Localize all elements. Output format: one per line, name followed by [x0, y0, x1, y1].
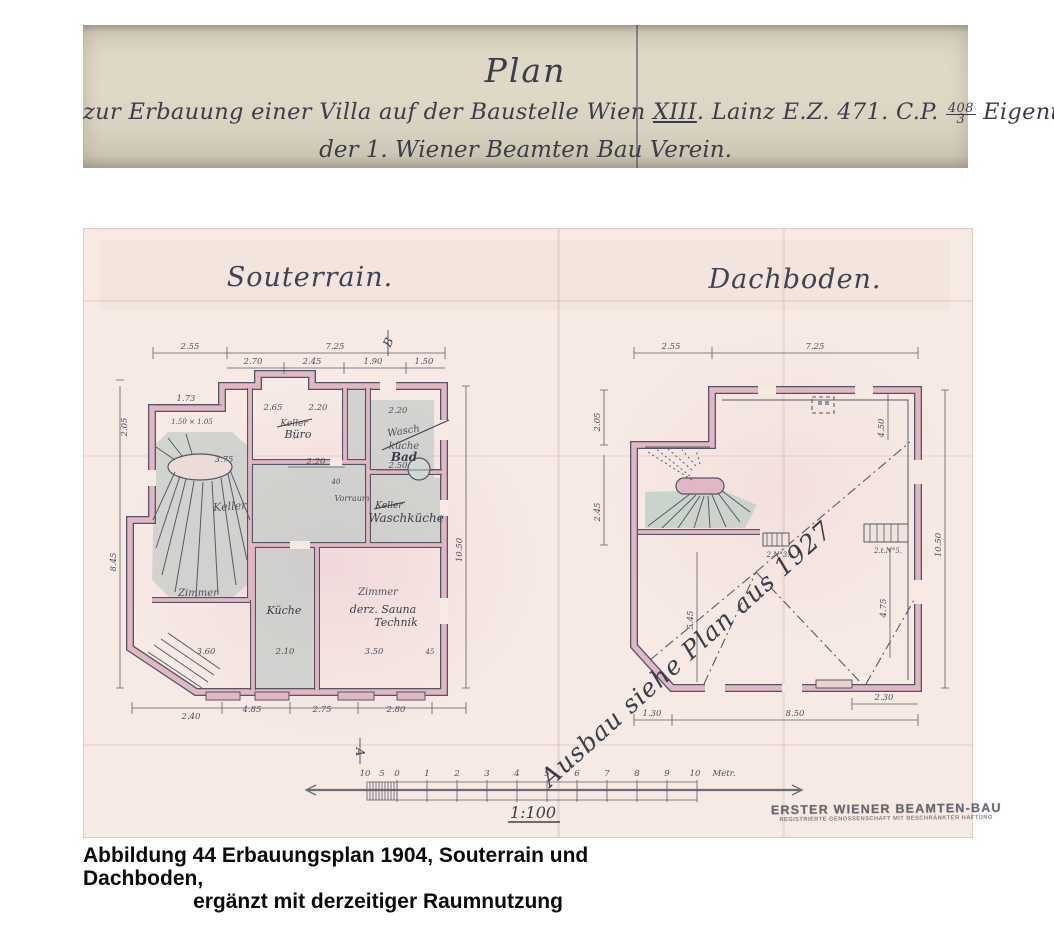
scale-tick: 0	[394, 769, 400, 779]
dim-label: 8.45	[109, 553, 119, 572]
parcel-fraction-bottom: 3	[946, 115, 976, 125]
scale-unit: Metr.	[712, 769, 736, 779]
room-label-sauna: derz. Sauna	[350, 603, 416, 616]
dim-label: 2.40	[181, 712, 202, 722]
dim-label: 2.70	[243, 357, 264, 367]
dim-label: 1.90	[364, 357, 384, 367]
dim-label: 1.30	[643, 709, 663, 719]
room-label-zimmer-left: Zimmer	[177, 588, 219, 599]
header-line2: zur Erbauung einer Villa auf der Baustel…	[83, 99, 968, 125]
header-line3: der 1. Wiener Beamten Bau Verein.	[83, 137, 968, 163]
scale-tick: 10	[360, 769, 371, 779]
dim-label: 4.50	[877, 418, 887, 439]
dim-label: 2.45	[302, 357, 322, 367]
chimney-flue	[825, 401, 829, 405]
dim-label: 1.50	[415, 357, 435, 367]
caption-line2: ergänzt mit derzeitiger Raumnutzung	[83, 890, 673, 913]
dim-label: 40	[331, 478, 341, 486]
dim-label: 2.30	[874, 693, 895, 703]
scale-tick: 2	[453, 769, 459, 779]
room-label-bad-new: Bad	[390, 450, 418, 464]
scanned-header-strip: Plan zur Erbauung einer Villa auf der Ba…	[83, 25, 968, 168]
souterrain-title: Souterrain.	[227, 262, 394, 293]
header-line2-pre: zur Erbauung einer Villa auf der Baustel…	[83, 99, 653, 125]
room-label-vorraum: Vorraum	[334, 494, 369, 503]
room-label-waschkueche-new: Waschküche	[368, 511, 444, 525]
company-stamp: ERSTER WIENER BEAMTEN-BAU REGISTRIERTE G…	[771, 801, 1001, 823]
room-label-technik: Technik	[374, 616, 418, 629]
scale-tick: 8	[634, 769, 640, 779]
parcel-fraction: 4083	[946, 104, 976, 126]
dim-label: 2.20	[388, 406, 409, 416]
scale-tick: 1	[424, 769, 429, 779]
document-page: Plan zur Erbauung einer Villa auf der Ba…	[0, 0, 1054, 941]
beam-box-label: 2.t.N°5.	[873, 547, 902, 555]
beam-box-2	[864, 524, 908, 542]
scale-tick: 3	[484, 769, 489, 779]
dim-label: 4.85	[242, 705, 262, 715]
header-line2-mid: . Lainz E.Z. 471. C.P.	[697, 99, 946, 125]
plan-drawing: Souterrain. Dachboden.	[83, 228, 973, 838]
dachboden-title: Dachboden.	[707, 264, 881, 295]
room-label-keller-stair: Keller	[212, 499, 248, 514]
plan-title: Plan	[83, 51, 968, 90]
dim-label: 2.20	[306, 457, 327, 467]
room-label-buero-new: Büro	[283, 428, 311, 441]
dim-label: 10.50	[934, 532, 944, 557]
dim-label: 3.75	[215, 455, 234, 465]
scale-tick: 9	[664, 769, 670, 779]
dim-label: 7.25	[806, 342, 825, 352]
bottom-wall-pier	[816, 680, 852, 688]
scale-tick: 7	[604, 769, 610, 779]
dim-label: 1.50 × 1.05	[171, 418, 213, 426]
dim-label: 2.45	[593, 503, 603, 523]
scale-tick: 5	[379, 769, 384, 779]
plan-sheet: Souterrain. Dachboden.	[83, 228, 973, 838]
scale-tick: 4	[513, 769, 519, 779]
dim-label: 3.60	[197, 647, 217, 657]
dim-label: 10.50	[455, 537, 465, 562]
caption-line1: Abbildung 44 Erbauungsplan 1904, Souterr…	[83, 844, 673, 890]
dim-label: 2.05	[593, 413, 603, 433]
scale-ratio: 1:100	[510, 803, 556, 822]
district-numeral: XIII	[653, 99, 697, 125]
dim-label: 2.75	[312, 705, 332, 715]
scale-tick: 10	[690, 769, 701, 779]
dim-label: 2.65	[263, 403, 283, 413]
dim-label: 2.10	[275, 647, 296, 657]
dim-label: 2.05	[120, 418, 130, 438]
scale-tick: 5	[544, 769, 549, 779]
dim-label: 4.75	[879, 599, 889, 619]
dim-label: 8.50	[786, 709, 806, 719]
chimney-flue	[818, 401, 822, 405]
dim-label: 7.25	[326, 342, 345, 352]
figure-caption: Abbildung 44 Erbauungsplan 1904, Souterr…	[83, 844, 673, 913]
dim-label: 2.55	[180, 342, 200, 352]
header-line2-post: Eigentümer	[976, 99, 1054, 125]
scale-tick: 6	[574, 769, 580, 779]
room-label-kueche: Küche	[266, 604, 302, 617]
room-label-zimmer-right: Zimmer	[357, 587, 399, 598]
dim-label: 2.20	[308, 403, 329, 413]
dim-label: 45	[425, 648, 435, 656]
dim-label: 3.50	[365, 647, 385, 657]
dim-label: 1.73	[177, 394, 196, 404]
dim-label: 2.55	[661, 342, 681, 352]
paper-blotch	[600, 330, 960, 650]
dim-label: 2.80	[386, 705, 407, 715]
